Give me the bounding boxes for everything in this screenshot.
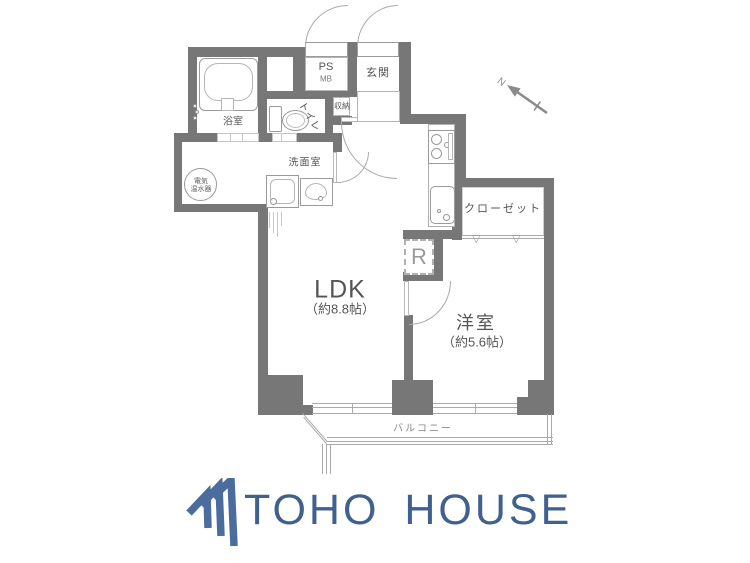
window-mullion	[352, 403, 353, 414]
floorplan-page: 電気 温水器 R ▽ ▽ 浴室 トイレ 洗面室 PS MB 玄関 収納 クローゼ…	[0, 0, 750, 563]
north-arrow-icon: N	[495, 72, 557, 122]
wall-segment	[455, 124, 466, 180]
wall-segment	[293, 47, 305, 95]
washroom-door-arc	[337, 152, 369, 183]
toho-house-logo-icon	[186, 478, 250, 548]
shower-icon	[193, 104, 197, 108]
entrance-label: 玄関	[366, 64, 390, 80]
shower-icon	[195, 110, 199, 114]
bath-control-panel	[221, 98, 234, 111]
vanity-bowl	[305, 183, 327, 200]
shower-icon	[193, 116, 197, 120]
door-tick	[281, 133, 282, 142]
wall-segment	[400, 114, 466, 124]
balcony-rail	[327, 437, 553, 438]
door-tick	[242, 133, 243, 142]
toho-house-logo-text: TOHO HOUSE	[244, 486, 572, 535]
closet-label: クローゼット	[464, 200, 542, 216]
stove-burner	[431, 148, 442, 159]
balcony-divider-line	[303, 417, 327, 444]
bathtub-inner	[204, 63, 253, 101]
washroom-label: 洗面室	[289, 154, 322, 169]
wall-segment	[258, 57, 267, 137]
ps-door-arc	[305, 5, 348, 47]
wall-segment	[452, 178, 554, 187]
door-tick	[230, 133, 231, 142]
balcony-rail-side	[551, 414, 552, 445]
mb-label: MB	[320, 75, 332, 84]
wall-segment	[259, 133, 273, 142]
plumbing-line	[281, 212, 282, 226]
stove-grill	[448, 133, 453, 160]
wall-segment	[188, 47, 197, 139]
wall-segment	[258, 375, 303, 415]
balcony-divider-line	[302, 413, 328, 442]
ps-label: PS	[319, 61, 334, 73]
wall-segment	[333, 133, 342, 152]
window-mullion	[475, 403, 476, 414]
stove-burner	[431, 134, 442, 145]
ldk-size-label: （約8.8帖）	[305, 299, 375, 318]
balcony-partition	[326, 444, 327, 474]
wall-segment	[197, 133, 217, 142]
sink-drain	[437, 209, 441, 213]
western-room-size-label: （約5.6帖）	[442, 332, 512, 351]
balcony-partition	[322, 444, 323, 474]
sink-faucet	[443, 214, 450, 221]
bathroom-sliding-door	[217, 133, 259, 142]
western-room-door-arc	[409, 281, 451, 325]
hanger-triangle-icon: ▽	[472, 234, 480, 245]
hanger-triangle-icon: ▽	[512, 234, 520, 245]
entrance-door-arc	[357, 5, 398, 47]
balcony-rail	[327, 441, 553, 442]
wall-segment	[174, 204, 267, 212]
wall-segment	[392, 380, 433, 415]
plumbing-line	[277, 212, 278, 237]
balcony-rail	[327, 444, 553, 445]
north-label: N	[495, 76, 507, 89]
wall-segment	[399, 42, 411, 122]
wall-segment	[188, 47, 304, 57]
balcony-rail-side	[547, 414, 548, 445]
wall-segment	[544, 178, 554, 415]
wall-segment	[262, 91, 325, 99]
balcony-partition	[330, 444, 331, 474]
wall-segment	[174, 133, 182, 212]
wall-segment	[517, 397, 528, 415]
plumbing-line	[269, 212, 270, 228]
wall-segment	[258, 204, 268, 375]
wall-segment	[348, 42, 357, 91]
storage-label: 収納	[334, 101, 350, 112]
vanity-faucet	[318, 196, 323, 201]
washer-valve	[270, 198, 277, 205]
wall-segment	[404, 315, 413, 383]
plumbing-line	[273, 212, 274, 233]
refrigerator-label: R	[411, 244, 427, 270]
bathroom-label: 浴室	[223, 113, 243, 128]
toilet-tank	[269, 106, 282, 132]
water-heater-label-line2: 温水器	[191, 184, 212, 194]
balcony-label: バルコニー	[393, 420, 453, 435]
entrance-floor	[357, 91, 400, 122]
toilet-door	[272, 133, 297, 142]
